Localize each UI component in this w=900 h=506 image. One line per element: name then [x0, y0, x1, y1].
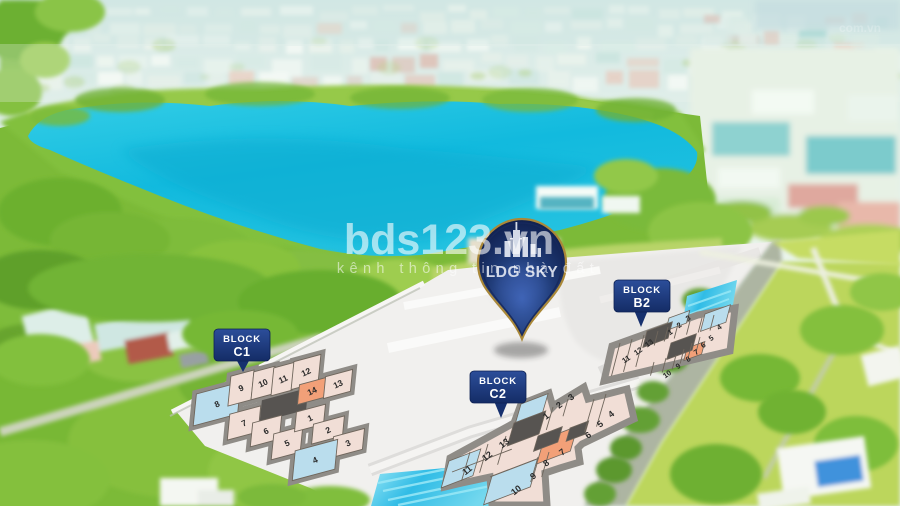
svg-text:kênh thông tin nhà đất: kênh thông tin nhà đất [337, 261, 599, 277]
svg-text:com.vn: com.vn [839, 21, 881, 35]
svg-text:B2: B2 [634, 296, 651, 310]
svg-text:bds123.vn: bds123.vn [344, 216, 554, 264]
svg-text:BLOCK: BLOCK [623, 285, 661, 296]
svg-text:C2: C2 [490, 387, 507, 401]
svg-text:C1: C1 [234, 345, 251, 359]
svg-text:BLOCK: BLOCK [479, 376, 517, 387]
svg-text:BLOCK: BLOCK [223, 334, 261, 345]
